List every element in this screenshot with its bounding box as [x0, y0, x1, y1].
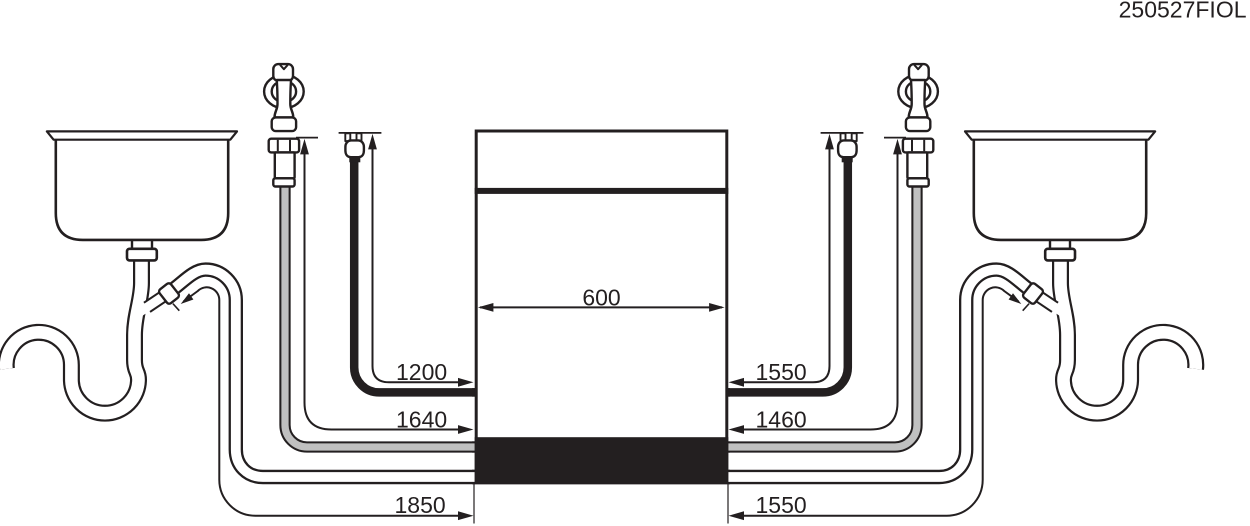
svg-text:1550: 1550	[756, 359, 807, 385]
svg-text:1850: 1850	[395, 492, 446, 518]
svg-text:1460: 1460	[756, 407, 807, 433]
svg-text:1550: 1550	[756, 492, 807, 518]
svg-text:600: 600	[582, 284, 620, 310]
svg-text:250527FIOL: 250527FIOL	[1119, 0, 1247, 22]
svg-text:1200: 1200	[396, 359, 447, 385]
svg-text:1640: 1640	[396, 407, 447, 433]
